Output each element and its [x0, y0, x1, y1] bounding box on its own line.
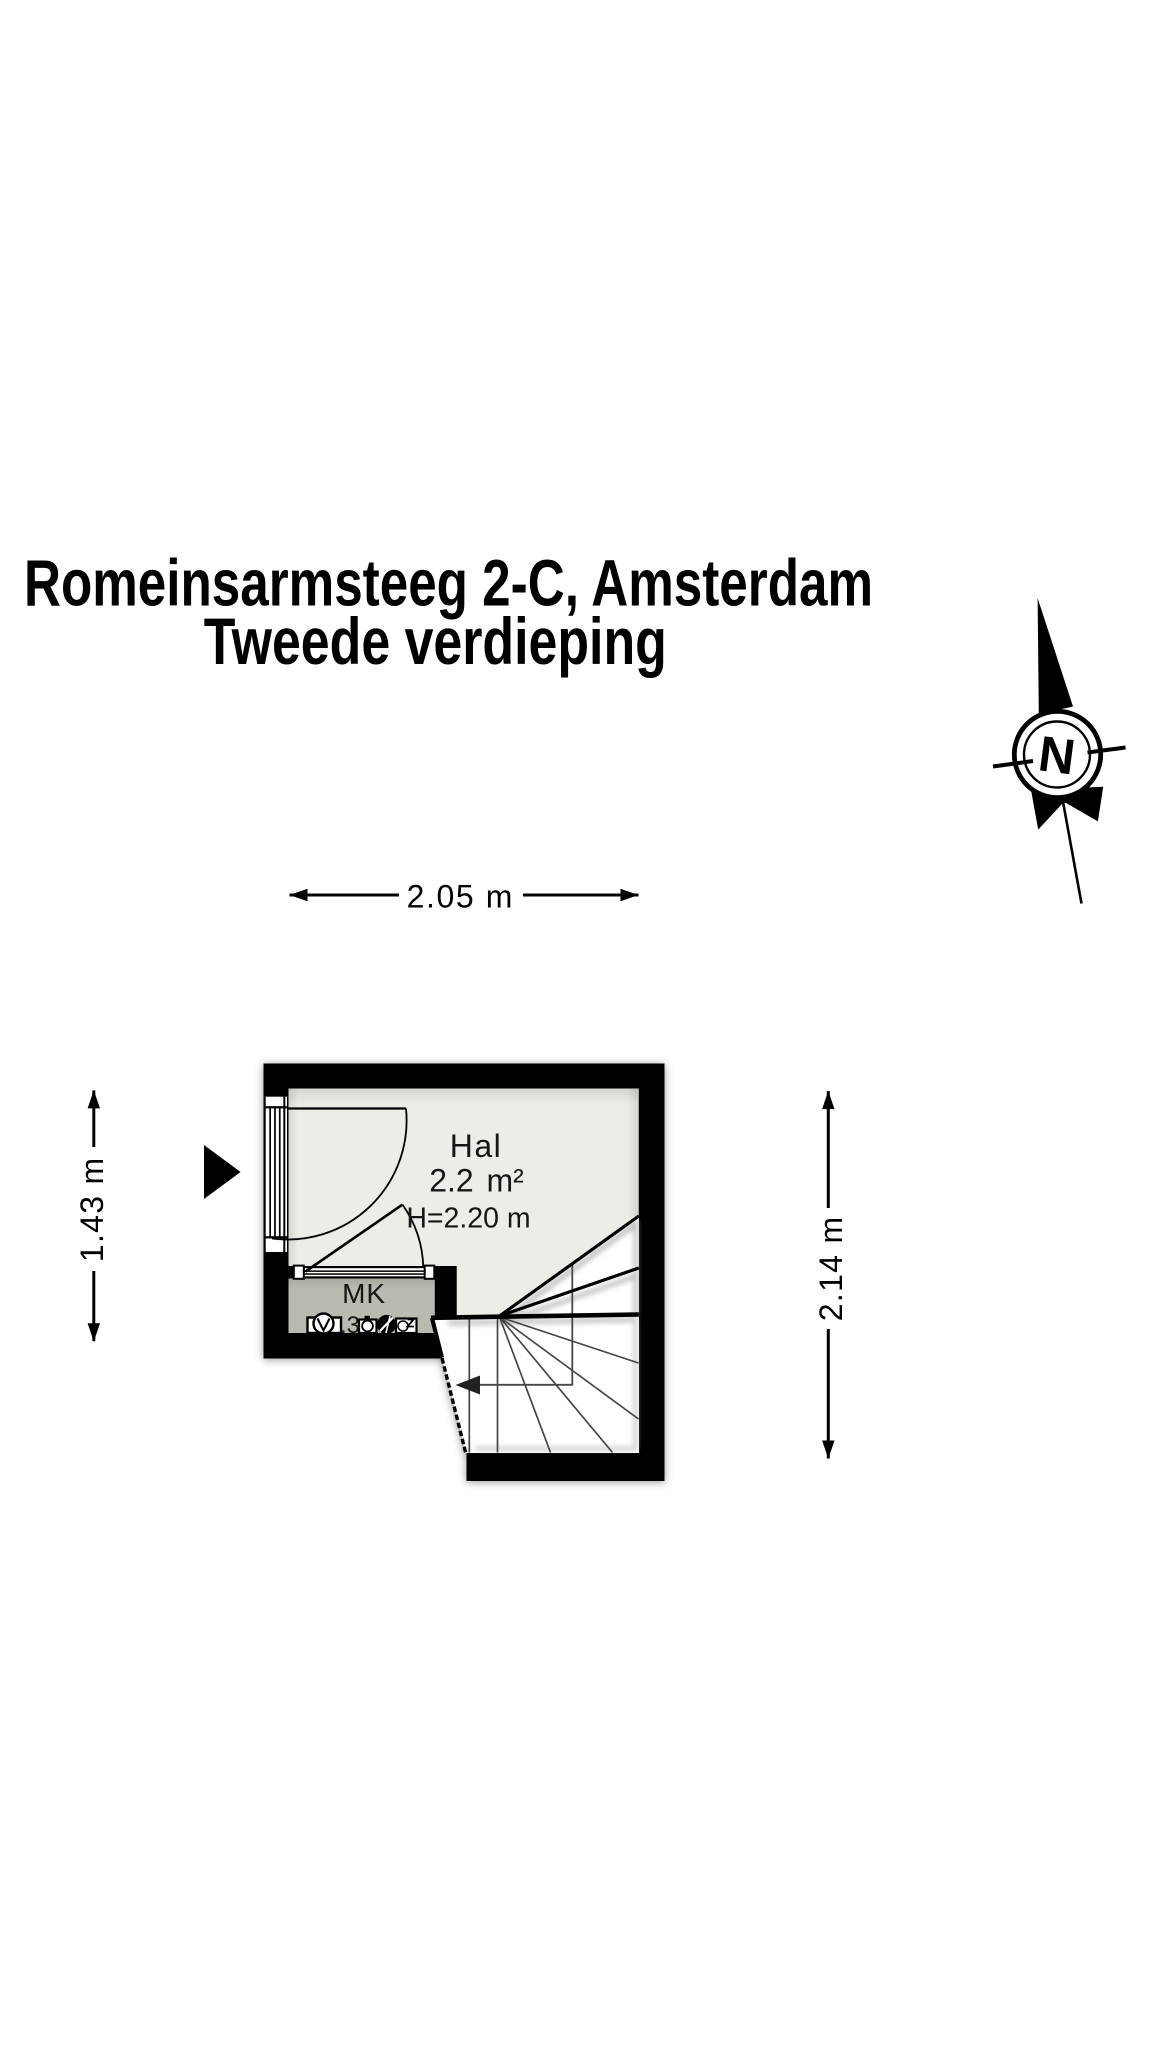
svg-text:.3: .3 — [340, 1312, 360, 1339]
svg-text:MK: MK — [342, 1278, 386, 1309]
svg-text:1.43 m: 1.43 m — [74, 1156, 110, 1262]
svg-text:Tweede verdieping: Tweede verdieping — [204, 604, 667, 678]
svg-text:Hal: Hal — [450, 1128, 503, 1164]
svg-text:2.05 m: 2.05 m — [407, 879, 514, 915]
svg-text:2.2 m²: 2.2 m² — [429, 1163, 524, 1199]
svg-text:N: N — [1035, 725, 1078, 785]
svg-text:H=2.20 m: H=2.20 m — [406, 1203, 530, 1235]
svg-text:2.14 m: 2.14 m — [813, 1216, 849, 1322]
